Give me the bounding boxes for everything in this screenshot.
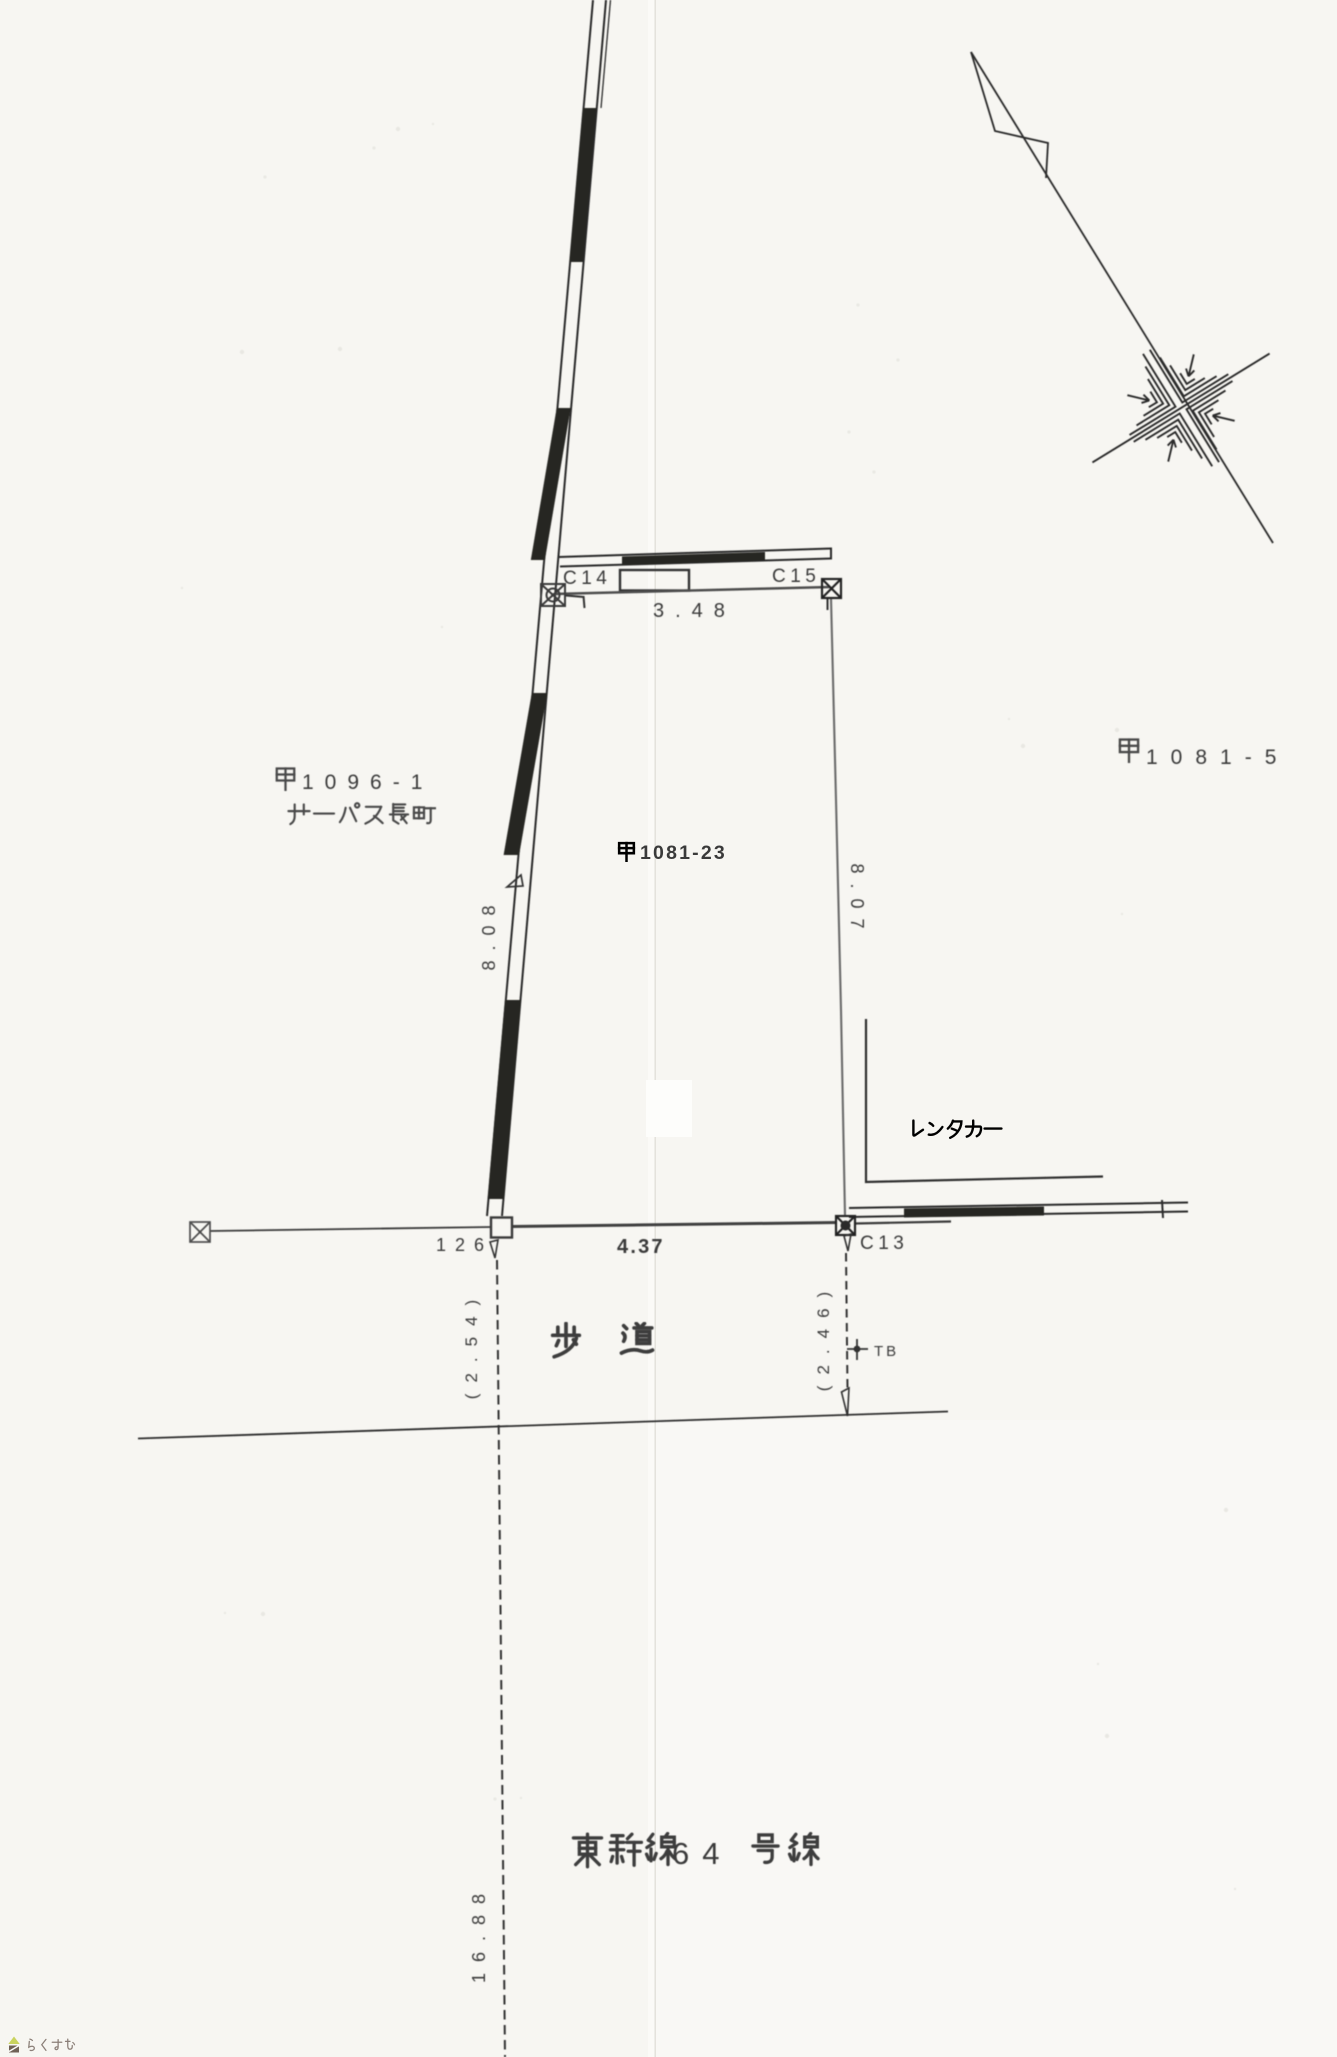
- svg-text:C15: C15: [772, 566, 820, 587]
- svg-text:1081-5: 1081-5: [1146, 746, 1289, 769]
- svg-text:TB: TB: [874, 1343, 899, 1360]
- svg-text:126: 126: [436, 1235, 493, 1255]
- svg-text:1096-1: 1096-1: [302, 771, 433, 794]
- svg-text:3.48: 3.48: [653, 600, 736, 622]
- svg-text:4.37: 4.37: [617, 1236, 665, 1258]
- svg-text:(2.46): (2.46): [814, 1281, 833, 1391]
- svg-text:16.88: 16.88: [469, 1883, 489, 1983]
- svg-text:C13: C13: [860, 1233, 908, 1254]
- svg-text:1081-23: 1081-23: [640, 842, 727, 864]
- svg-text:64: 64: [672, 1836, 732, 1871]
- svg-text:8.08: 8.08: [479, 895, 499, 970]
- svg-text:(2.54): (2.54): [462, 1289, 481, 1399]
- svg-text:8.07: 8.07: [847, 863, 867, 938]
- svg-text:C14: C14: [563, 568, 611, 589]
